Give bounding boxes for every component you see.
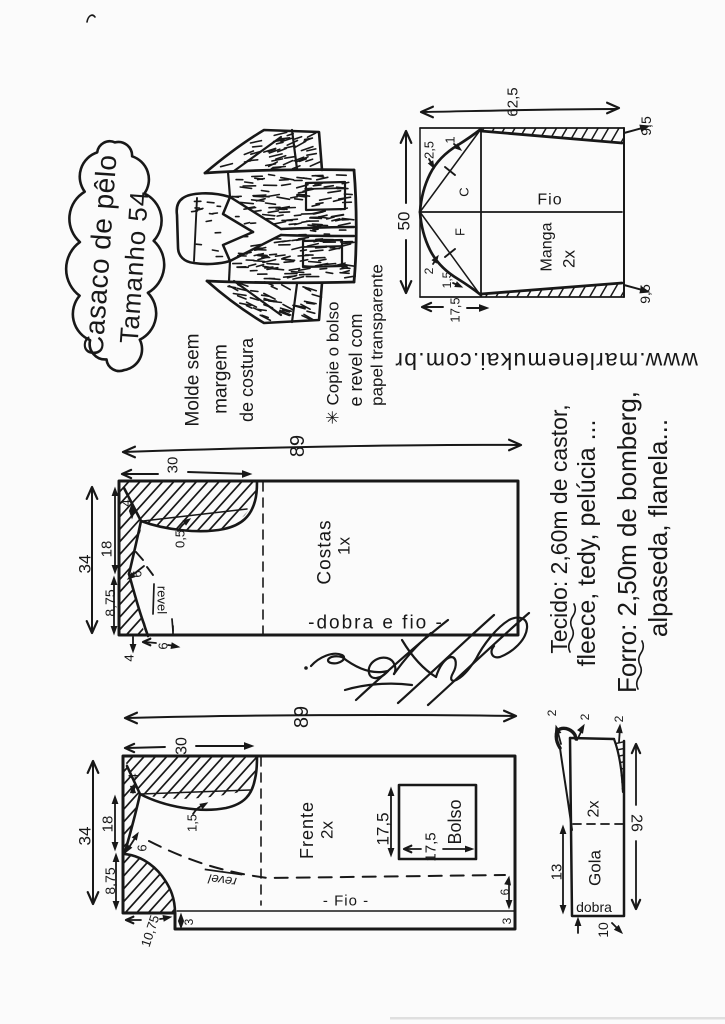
svg-text:4: 4: [126, 773, 141, 780]
svg-text:✳ Copie o bolso: ✳ Copie o bolso: [324, 302, 343, 425]
svg-text:2x: 2x: [318, 821, 337, 839]
svg-text:17,5: 17,5: [448, 297, 463, 322]
svg-text:13: 13: [549, 864, 566, 881]
svg-text:6: 6: [135, 844, 150, 851]
svg-text:Tecido: 2,60m de castor,: Tecido: 2,60m de castor,: [546, 404, 572, 653]
svg-text:17,5: 17,5: [423, 832, 440, 861]
svg-text:3: 3: [182, 918, 196, 925]
svg-text:17,5: 17,5: [374, 812, 393, 845]
svg-text:34: 34: [76, 555, 95, 574]
svg-text:Frente: Frente: [297, 801, 317, 859]
svg-text:34: 34: [76, 827, 95, 846]
svg-text:6: 6: [498, 888, 512, 895]
svg-text:Manga: Manga: [539, 222, 556, 271]
svg-text:18: 18: [99, 541, 116, 558]
svg-text:www.marlenemukai.com.br: www.marlenemukai.com.br: [394, 348, 699, 374]
svg-text:8,75: 8,75: [102, 589, 118, 616]
svg-text:2x: 2x: [560, 250, 579, 268]
svg-text:F: F: [453, 228, 468, 236]
svg-text:papel transparente: papel transparente: [368, 264, 387, 406]
svg-text:Costas: Costas: [315, 519, 336, 584]
svg-text:26: 26: [628, 814, 645, 832]
svg-text:2,5: 2,5: [422, 141, 437, 159]
svg-text:2: 2: [545, 709, 559, 716]
svg-text:e revel com: e revel com: [346, 313, 366, 406]
svg-text:89: 89: [291, 706, 313, 728]
svg-text:9,5: 9,5: [637, 284, 653, 304]
svg-text:Forro: 2,50m de bomberg,: Forro: 2,50m de bomberg,: [612, 391, 642, 693]
svg-text:Fio: Fio: [537, 192, 562, 209]
svg-text:2x: 2x: [586, 801, 603, 818]
svg-text:2: 2: [578, 713, 592, 720]
svg-text:9,5: 9,5: [638, 116, 654, 136]
svg-text:Bolso: Bolso: [445, 799, 465, 844]
svg-text:50: 50: [395, 212, 414, 231]
svg-text:10: 10: [595, 922, 611, 938]
svg-text:0,5: 0,5: [173, 530, 188, 548]
svg-text:30: 30: [174, 737, 191, 755]
svg-text:1: 1: [443, 136, 458, 143]
svg-text:fleece, tedy, pelúcia ...: fleece, tedy, pelúcia ...: [573, 420, 601, 667]
svg-text:de costura: de costura: [237, 337, 257, 422]
svg-text:1,5: 1,5: [185, 814, 200, 832]
svg-text:30: 30: [165, 457, 182, 474]
svg-text:C: C: [457, 187, 472, 196]
svg-text:8,75: 8,75: [102, 867, 118, 894]
svg-text:margem: margem: [211, 344, 232, 414]
svg-text:-dobra e fio -: -dobra e fio -: [308, 613, 444, 634]
svg-text:1,5: 1,5: [440, 271, 454, 288]
svg-text:1x: 1x: [335, 537, 354, 555]
svg-text:alpaseda, flanela...: alpaseda, flanela...: [643, 419, 673, 637]
svg-text:revel: revel: [155, 586, 170, 614]
svg-text:62,5: 62,5: [505, 87, 522, 116]
svg-text:3: 3: [500, 917, 514, 924]
svg-text:18: 18: [100, 816, 117, 833]
svg-text:dobra: dobra: [576, 899, 612, 915]
svg-text:89: 89: [287, 435, 309, 457]
svg-text:2: 2: [612, 715, 626, 722]
svg-text:Molde sem: Molde sem: [183, 334, 204, 427]
svg-text:4: 4: [122, 654, 137, 661]
svg-text:Gola: Gola: [586, 850, 605, 886]
svg-text:- Fio -: - Fio -: [323, 893, 369, 910]
svg-text:2: 2: [422, 267, 436, 274]
svg-text:6: 6: [156, 642, 171, 649]
